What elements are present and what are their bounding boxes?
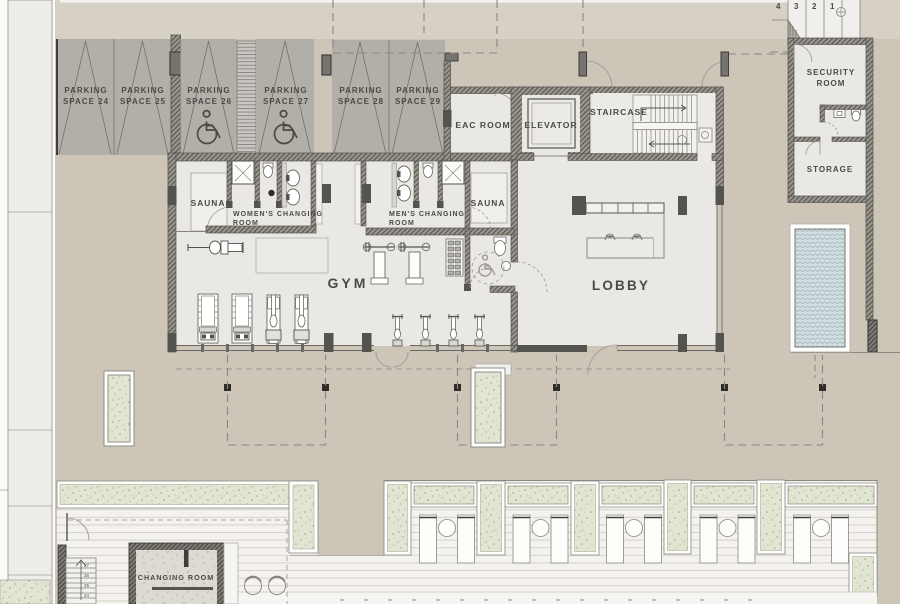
svg-text:SAUNA: SAUNA [471,198,506,208]
svg-text:SPACE 24: SPACE 24 [63,97,109,106]
svg-text:SPACE 25: SPACE 25 [120,97,166,106]
svg-text:25: 25 [84,583,90,588]
svg-text:SECURITY: SECURITY [807,68,855,77]
svg-text:27: 27 [84,563,90,568]
svg-text:CHANGING ROOM: CHANGING ROOM [138,573,215,582]
svg-text:2: 2 [812,2,817,11]
svg-text:WOMEN'S CHANGING: WOMEN'S CHANGING [233,211,323,218]
svg-text:PARKING: PARKING [264,86,307,95]
svg-text:MEN'S CHANGING: MEN'S CHANGING [389,211,465,218]
svg-text:SPACE 28: SPACE 28 [338,97,384,106]
svg-text:ROOM: ROOM [817,79,846,88]
svg-text:ELEVATOR: ELEVATOR [524,120,577,130]
svg-text:26: 26 [84,573,90,578]
svg-text:STAIRCASE: STAIRCASE [590,107,648,117]
svg-text:EAC ROOM: EAC ROOM [455,120,510,130]
svg-text:SPACE 26: SPACE 26 [186,97,232,106]
svg-text:PARKING: PARKING [187,86,230,95]
svg-text:PARKING: PARKING [396,86,439,95]
svg-text:PARKING: PARKING [64,86,107,95]
svg-text:SPACE 27: SPACE 27 [263,97,309,106]
svg-text:SPACE 29: SPACE 29 [395,97,441,106]
svg-text:PARKING: PARKING [121,86,164,95]
svg-text:PARKING: PARKING [339,86,382,95]
svg-text:SAUNA: SAUNA [191,198,226,208]
svg-text:24: 24 [84,593,90,598]
svg-text:4: 4 [776,2,781,11]
svg-text:STORAGE: STORAGE [807,165,853,174]
svg-text:3: 3 [794,2,799,11]
svg-text:ROOM: ROOM [233,220,259,227]
svg-text:ROOM: ROOM [389,220,415,227]
svg-text:GYM: GYM [328,275,369,291]
svg-text:1: 1 [830,2,835,11]
svg-text:LOBBY: LOBBY [592,278,650,293]
